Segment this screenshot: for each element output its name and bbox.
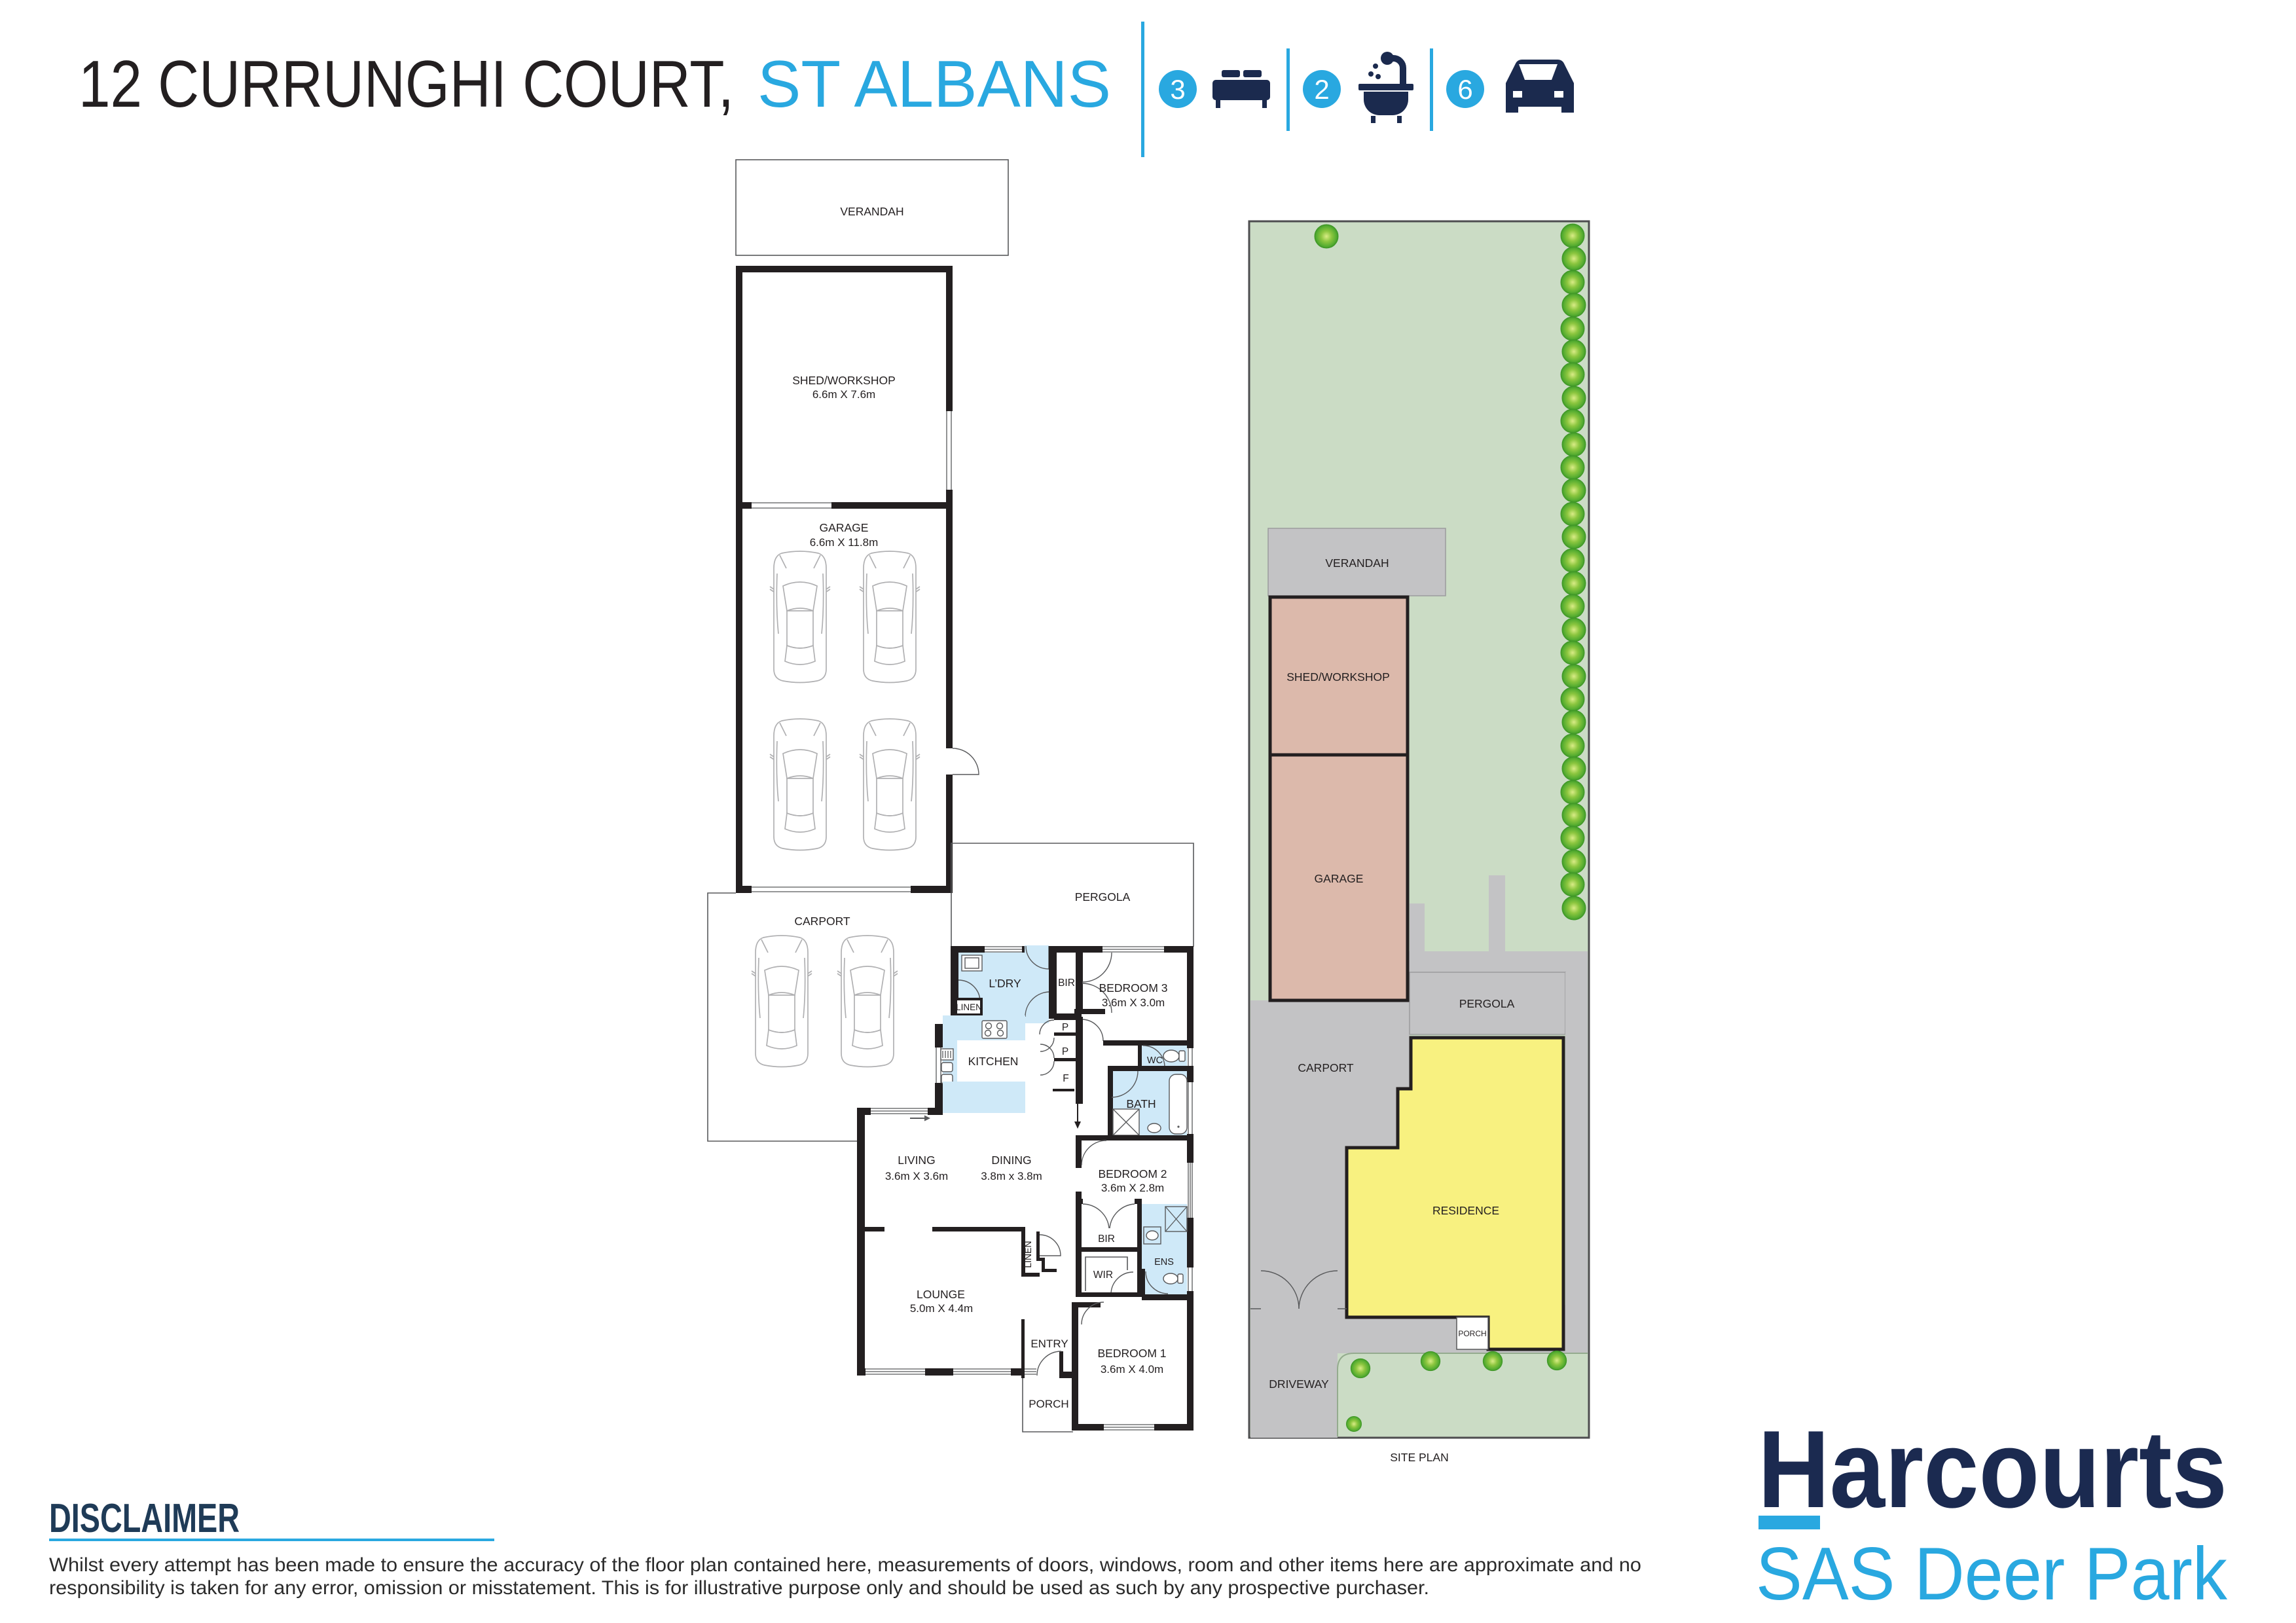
svg-text:6: 6 (1457, 74, 1472, 105)
svg-text:6.6m X 7.6m: 6.6m X 7.6m (812, 388, 875, 401)
svg-text:PORCH: PORCH (1029, 1398, 1068, 1410)
svg-text:DRIVEWAY: DRIVEWAY (1269, 1377, 1329, 1391)
svg-text:ENTRY: ENTRY (1030, 1338, 1068, 1350)
svg-text:BEDROOM 1: BEDROOM 1 (1097, 1347, 1166, 1360)
svg-text:SHED/WORKSHOP: SHED/WORKSHOP (1286, 670, 1390, 684)
svg-text:Whilst every attempt has been: Whilst every attempt has been made to en… (49, 1554, 1641, 1576)
svg-text:LINEN: LINEN (1023, 1241, 1033, 1267)
svg-text:L’DRY: L’DRY (989, 977, 1021, 990)
svg-text:SAS Deer Park: SAS Deer Park (1756, 1533, 2228, 1616)
svg-text:ST ALBANS: ST ALBANS (757, 48, 1111, 121)
svg-text:BEDROOM 2: BEDROOM 2 (1098, 1167, 1167, 1180)
svg-text:LINEN: LINEN (956, 1002, 982, 1012)
svg-text:DINING: DINING (991, 1154, 1031, 1167)
svg-text:3.8m x 3.8m: 3.8m x 3.8m (981, 1170, 1042, 1182)
svg-text:RESIDENCE: RESIDENCE (1432, 1204, 1499, 1217)
svg-text:12 CURRUNGHI COURT,: 12 CURRUNGHI COURT, (79, 48, 734, 121)
svg-text:Harcourts: Harcourts (1758, 1408, 2227, 1531)
svg-text:PERGOLA: PERGOLA (1459, 997, 1515, 1010)
svg-text:VERANDAH: VERANDAH (840, 205, 903, 218)
svg-text:BATH: BATH (1126, 1097, 1156, 1110)
svg-text:LIVING: LIVING (898, 1154, 935, 1167)
svg-text:responsibility is taken for an: responsibility is taken for any error, o… (49, 1577, 1429, 1599)
svg-text:3.6m X 4.0m: 3.6m X 4.0m (1101, 1363, 1163, 1376)
svg-text:P: P (1062, 1046, 1068, 1057)
svg-text:3.6m X 3.6m: 3.6m X 3.6m (885, 1170, 948, 1182)
svg-text:2: 2 (1314, 74, 1329, 105)
svg-text:CARPORT: CARPORT (1298, 1061, 1354, 1074)
svg-text:BIR: BIR (1058, 977, 1075, 989)
svg-text:GARAGE: GARAGE (1315, 872, 1364, 885)
svg-text:BIR: BIR (1098, 1233, 1115, 1245)
svg-text:SITE PLAN: SITE PLAN (1390, 1451, 1448, 1464)
svg-text:5.0m X 4.4m: 5.0m X 4.4m (910, 1302, 973, 1315)
svg-text:SHED/WORKSHOP: SHED/WORKSHOP (792, 374, 896, 387)
svg-text:6.6m X 11.8m: 6.6m X 11.8m (810, 536, 879, 549)
svg-text:DISCLAIMER: DISCLAIMER (49, 1496, 240, 1541)
svg-text:PERGOLA: PERGOLA (1075, 890, 1131, 903)
svg-text:BEDROOM 3: BEDROOM 3 (1099, 981, 1167, 994)
svg-text:WC: WC (1147, 1055, 1163, 1066)
svg-text:3: 3 (1170, 74, 1185, 105)
svg-text:F: F (1063, 1073, 1068, 1084)
svg-text:PORCH: PORCH (1458, 1329, 1486, 1338)
svg-text:VERANDAH: VERANDAH (1325, 556, 1389, 570)
svg-text:CARPORT: CARPORT (794, 915, 850, 928)
svg-text:KITCHEN: KITCHEN (968, 1055, 1019, 1068)
svg-text:WIR: WIR (1093, 1269, 1113, 1281)
svg-text:3.6m X 3.0m: 3.6m X 3.0m (1102, 996, 1165, 1009)
svg-text:GARAGE: GARAGE (820, 521, 869, 534)
svg-text:LOUNGE: LOUNGE (917, 1288, 965, 1301)
svg-text:ENS: ENS (1154, 1257, 1174, 1267)
svg-text:P: P (1062, 1022, 1068, 1033)
svg-text:3.6m X 2.8m: 3.6m X 2.8m (1101, 1182, 1164, 1194)
